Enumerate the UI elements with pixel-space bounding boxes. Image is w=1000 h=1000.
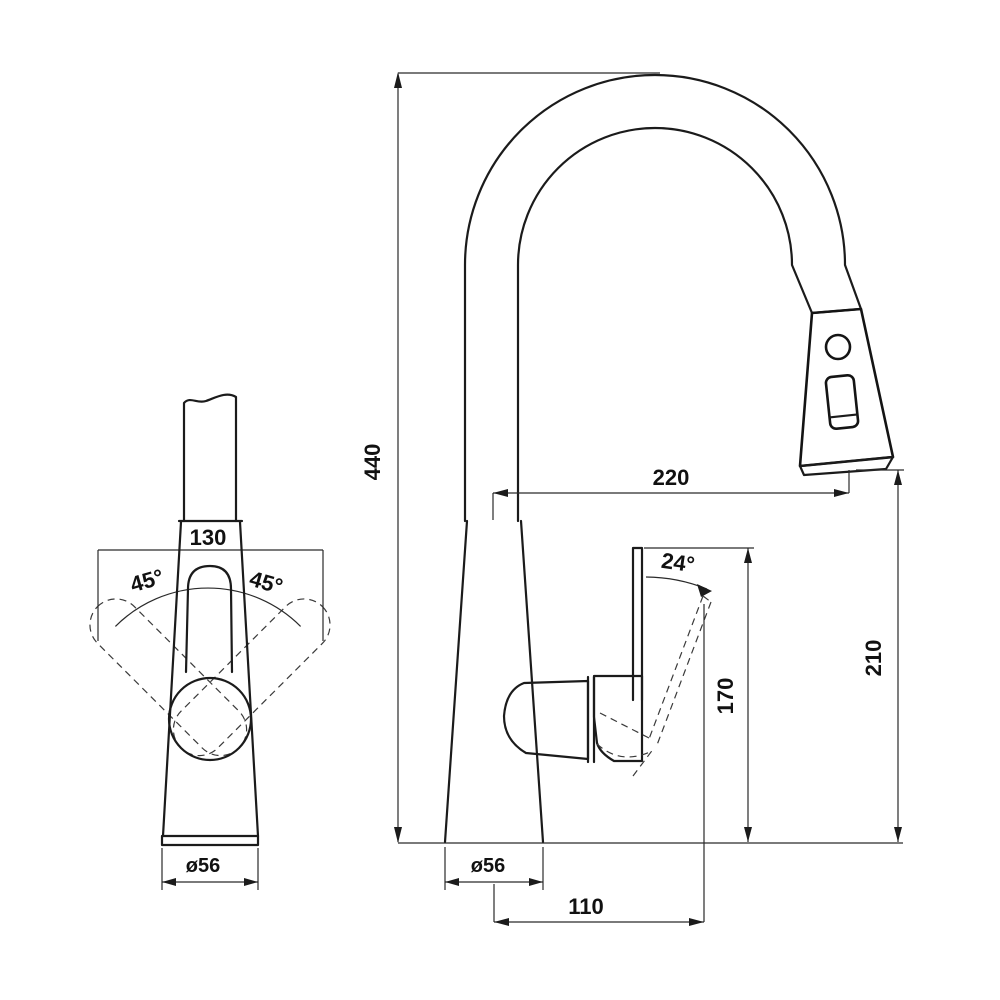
dim-label-spout-length: 130	[190, 525, 227, 550]
dim-label-spout-reach: 220	[653, 465, 690, 490]
spray-button-icon	[826, 335, 850, 359]
dim-base-diameter-front: ø56	[162, 848, 258, 890]
dim-label-handle-angle: 24°	[660, 548, 696, 577]
dim-label-outlet-height: 210	[861, 640, 886, 677]
handle-cap-side	[504, 681, 588, 759]
dim-label-swivel-right: 45°	[247, 566, 286, 599]
dim-total-height: 440	[360, 72, 660, 843]
dim-handle-angle: 24°	[646, 548, 712, 597]
faucet-body-side	[445, 521, 543, 842]
spout-tube	[184, 395, 236, 521]
dim-label-base-diameter-front: ø56	[186, 855, 220, 877]
handle-lever-tilted-dashed	[597, 596, 711, 776]
handle-lever-up	[633, 548, 642, 700]
dim-label-total-height: 440	[360, 444, 385, 481]
dim-spout-reach: 220	[493, 465, 849, 520]
dimensions-side-view: 440 220 24° 170	[360, 72, 904, 926]
dim-label-base-diameter-side: ø56	[471, 855, 505, 877]
gooseneck-inner	[518, 128, 812, 521]
handle-front	[186, 566, 232, 672]
dim-base-diameter-side: ø56	[445, 847, 543, 890]
dim-handle-height: 170	[644, 548, 754, 842]
technical-drawing-page: ø56 130 45° 45°	[0, 0, 1000, 1000]
dim-label-handle-height: 170	[713, 678, 738, 715]
faucet-top-view: ø56 130 45° 45°	[79, 395, 341, 890]
faucet-side-view	[445, 75, 893, 842]
spray-rocker-switch	[825, 375, 858, 430]
spray-head	[800, 309, 893, 466]
dim-outlet-height: 210	[856, 470, 904, 842]
handle-knob-front	[169, 678, 251, 760]
dim-handle-offset: 110	[494, 604, 704, 926]
spray-head-nozzle	[800, 457, 893, 475]
faucet-dimension-drawing: ø56 130 45° 45°	[0, 0, 1000, 1000]
faucet-base-front	[162, 836, 258, 845]
dim-label-handle-offset: 110	[568, 894, 604, 919]
dim-label-swivel-left: 45°	[127, 564, 166, 597]
